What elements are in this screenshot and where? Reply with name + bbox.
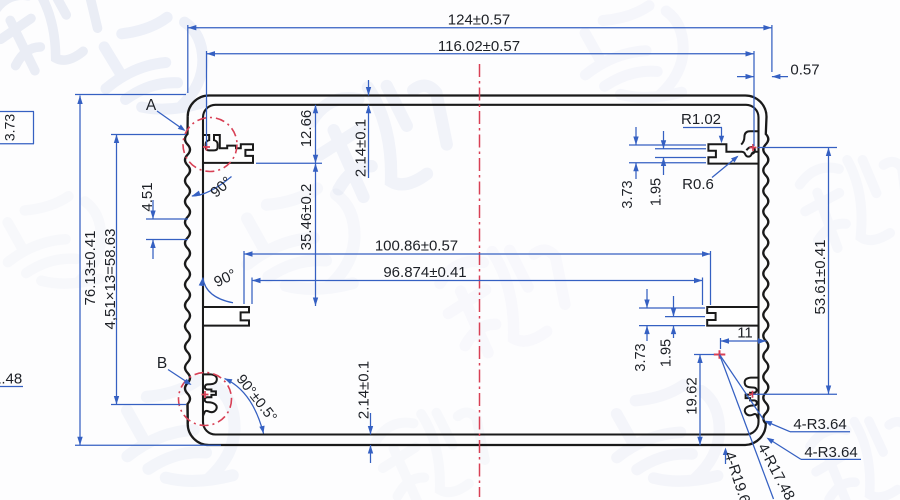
- svg-text:53.61±0.41: 53.61±0.41: [812, 240, 829, 315]
- svg-text:1.95: 1.95: [649, 178, 665, 206]
- svg-text:4,51×13=58.63: 4,51×13=58.63: [102, 229, 119, 330]
- svg-text:3.73: 3.73: [633, 343, 649, 371]
- svg-text:35.46±0.2: 35.46±0.2: [298, 184, 315, 251]
- svg-text:1.95: 1.95: [659, 339, 675, 367]
- svg-text:100.86±0.57: 100.86±0.57: [375, 238, 458, 255]
- svg-text:116.02±0.57: 116.02±0.57: [438, 38, 520, 55]
- svg-text:1.48: 1.48: [0, 371, 22, 388]
- svg-text:2.14±0.1: 2.14±0.1: [355, 361, 372, 419]
- svg-text:3.73: 3.73: [620, 180, 636, 208]
- svg-text:19.62: 19.62: [683, 377, 700, 415]
- svg-text:76.13±0.41: 76.13±0.41: [82, 231, 99, 306]
- svg-text:11: 11: [737, 325, 753, 342]
- svg-text:2.14±0.1: 2.14±0.1: [352, 119, 369, 177]
- svg-text:B: B: [157, 355, 167, 372]
- svg-text:4-R3.64: 4-R3.64: [793, 416, 846, 433]
- svg-text:A: A: [146, 97, 157, 114]
- svg-text:R1.02: R1.02: [681, 111, 721, 128]
- svg-text:12.66: 12.66: [298, 110, 315, 148]
- svg-text:96.874±0.41: 96.874±0.41: [383, 264, 466, 281]
- svg-text:124±0.57: 124±0.57: [448, 12, 510, 29]
- svg-text:4-R3.64: 4-R3.64: [804, 444, 857, 461]
- svg-text:4.51: 4.51: [139, 182, 156, 211]
- svg-text:R0.6: R0.6: [682, 176, 714, 193]
- svg-text:0.57: 0.57: [790, 62, 819, 79]
- svg-text:3.73: 3.73: [1, 114, 17, 141]
